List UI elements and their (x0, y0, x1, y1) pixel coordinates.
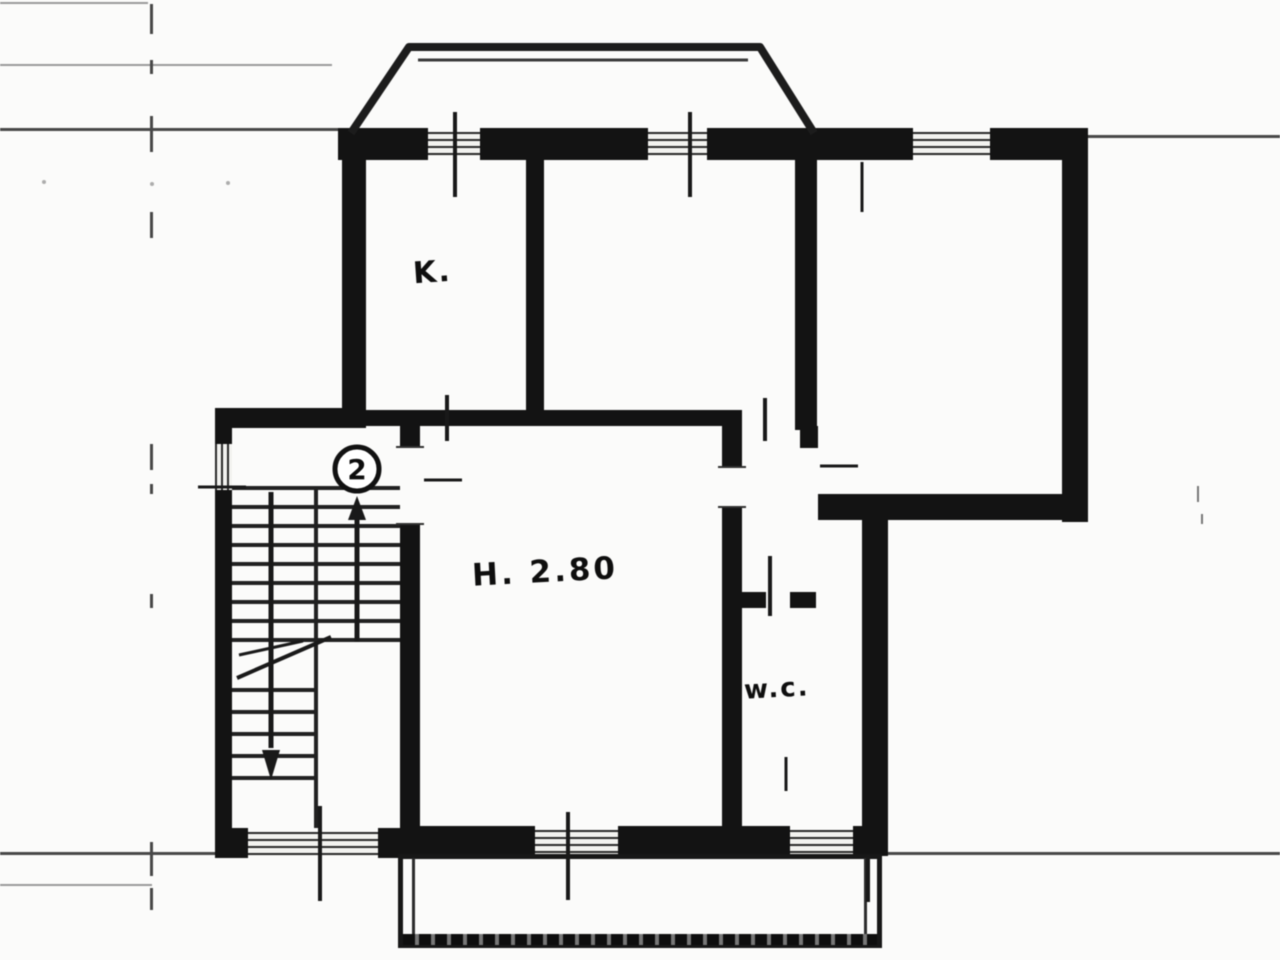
stair-up-arrow-head (348, 496, 366, 520)
floor-plan-drawing: 2 K. H. 2.80 w.c. (0, 0, 1280, 960)
label-kitchen: K. (412, 254, 453, 292)
label-ceiling-height: H. 2.80 (471, 550, 619, 594)
stair-break-line (237, 637, 331, 678)
linework-overlay: 2 (0, 0, 1280, 960)
floor-plan-scan: 2 K. H. 2.80 w.c. (0, 0, 1280, 960)
label-wc: w.c. (743, 672, 810, 705)
floor-number: 2 (347, 453, 366, 486)
stair-down-arrow-head (262, 750, 280, 780)
